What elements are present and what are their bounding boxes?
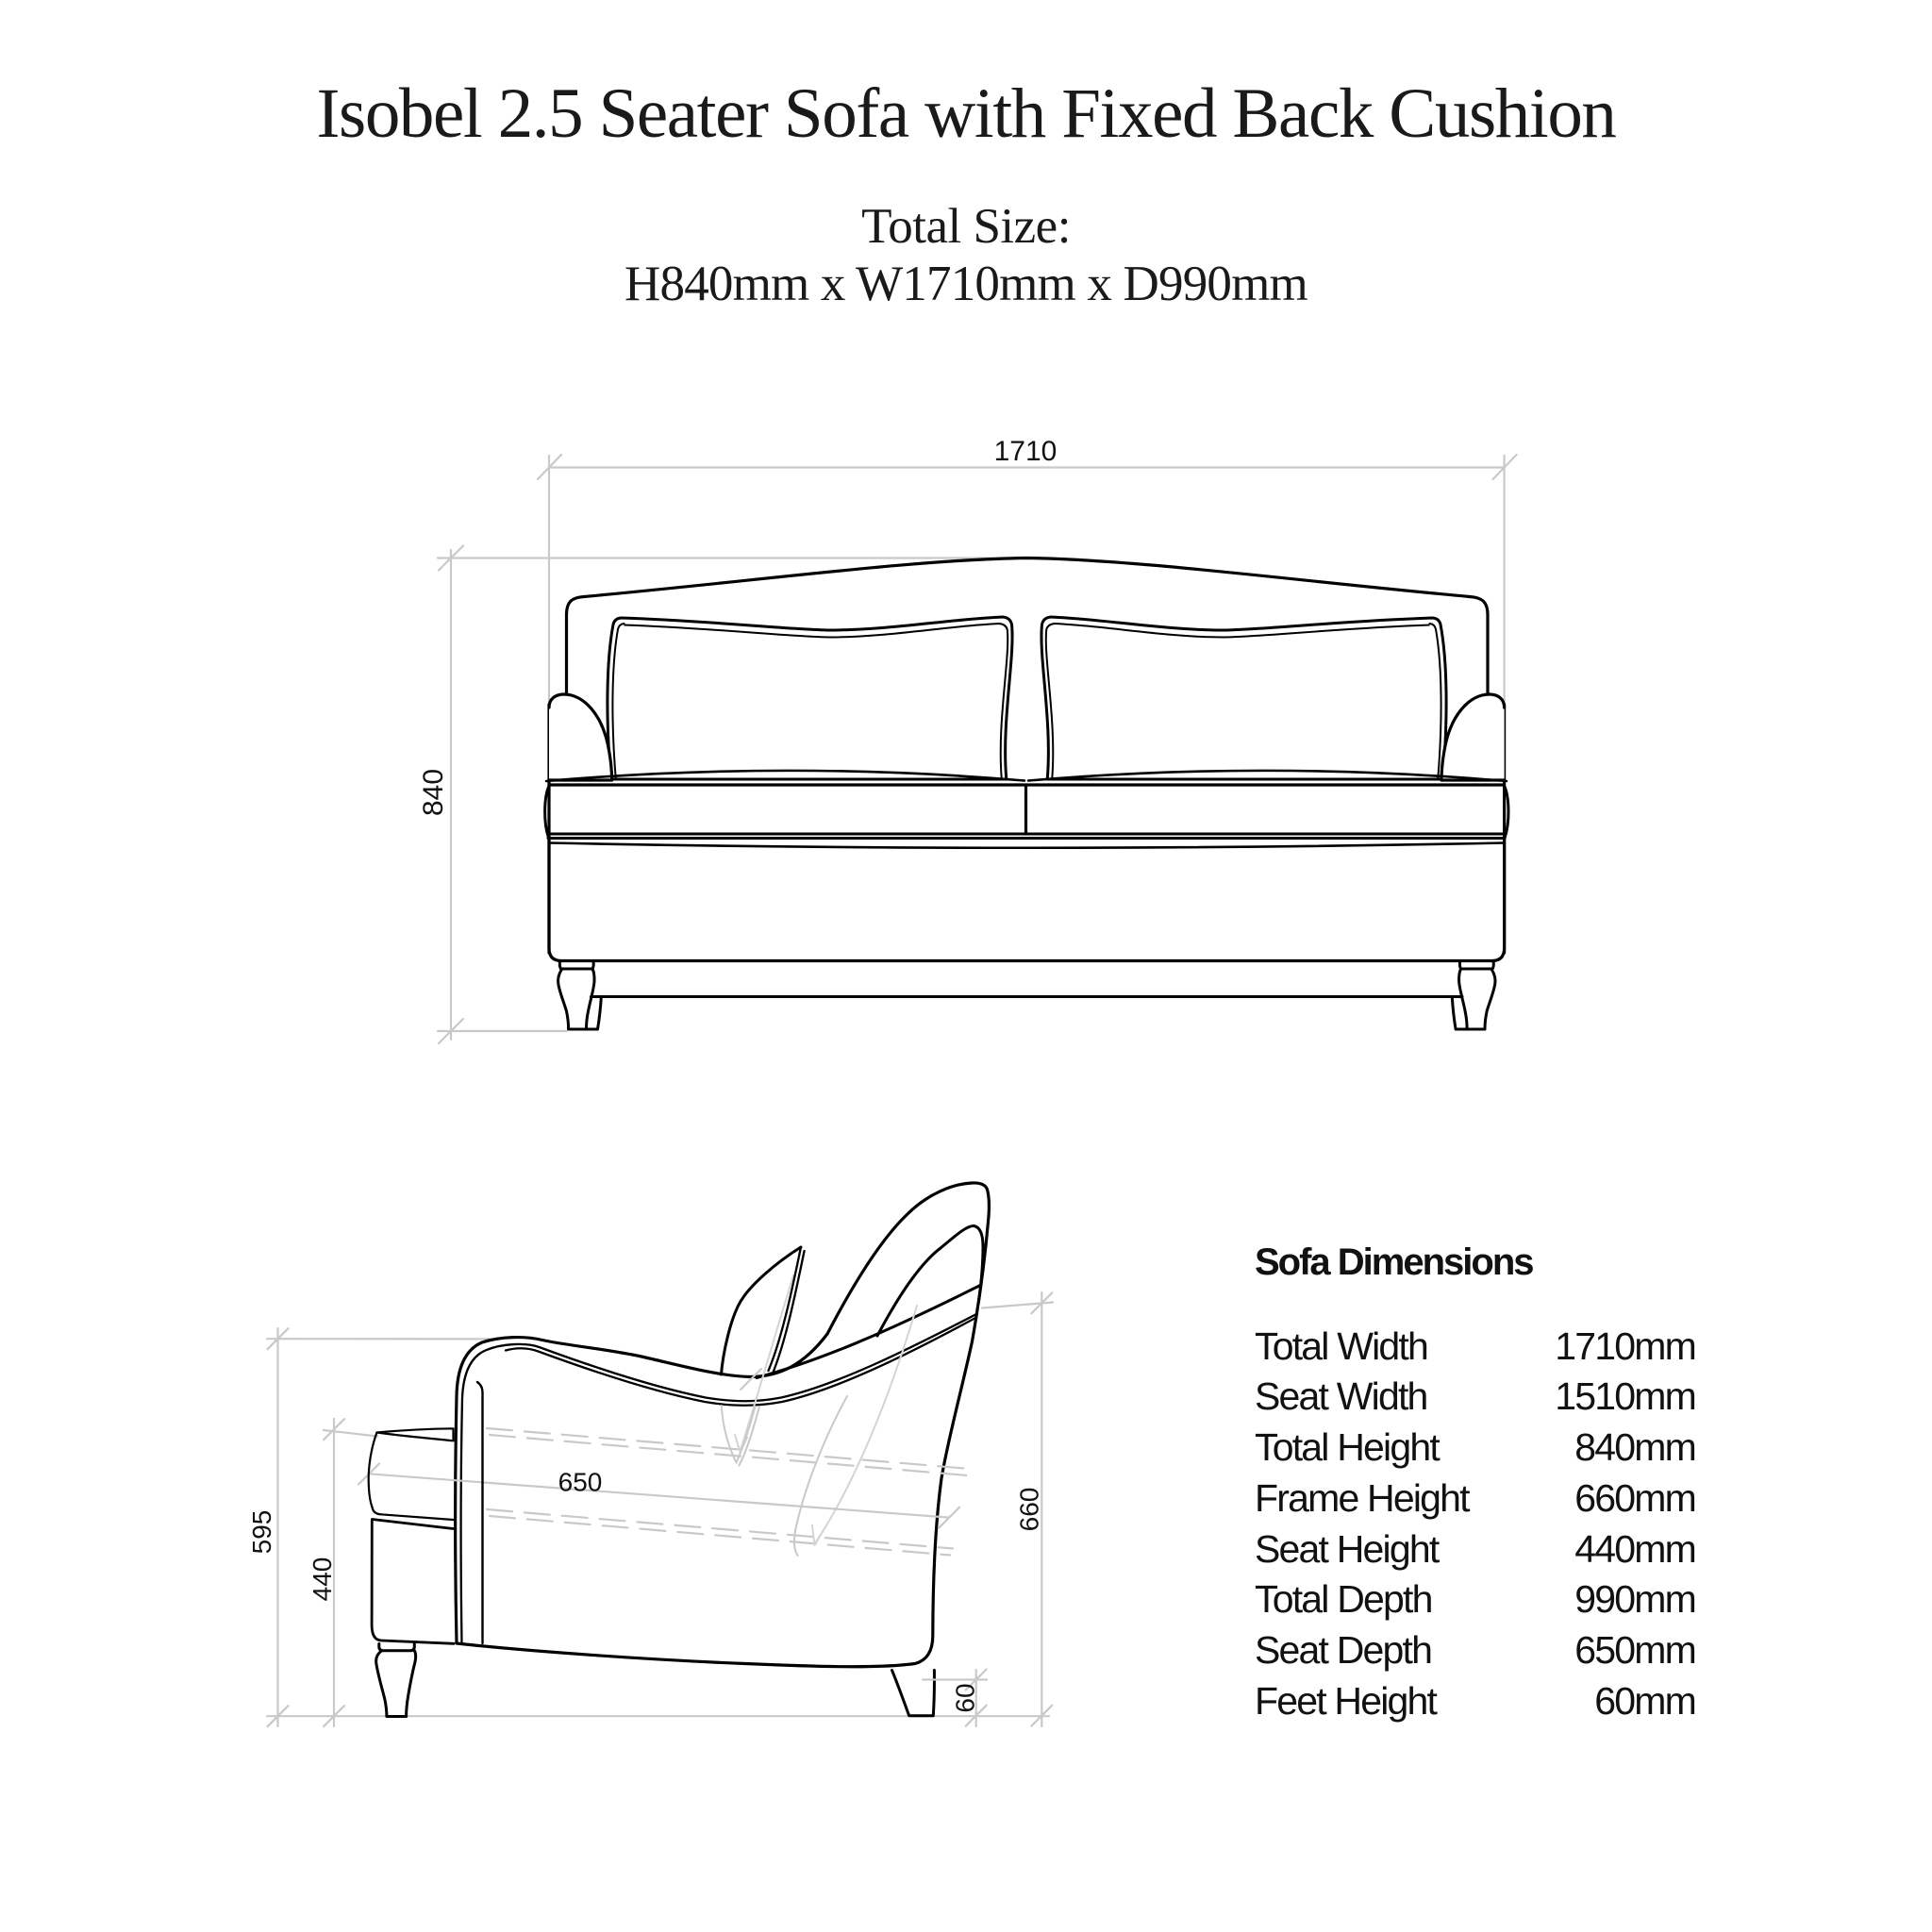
svg-text:840: 840 xyxy=(418,769,449,816)
svg-text:595: 595 xyxy=(247,1510,276,1555)
svg-text:440: 440 xyxy=(308,1557,337,1602)
svg-text:650: 650 xyxy=(558,1468,603,1497)
svg-text:60: 60 xyxy=(951,1683,980,1712)
svg-text:1710: 1710 xyxy=(994,436,1058,467)
svg-text:660: 660 xyxy=(1015,1488,1044,1532)
